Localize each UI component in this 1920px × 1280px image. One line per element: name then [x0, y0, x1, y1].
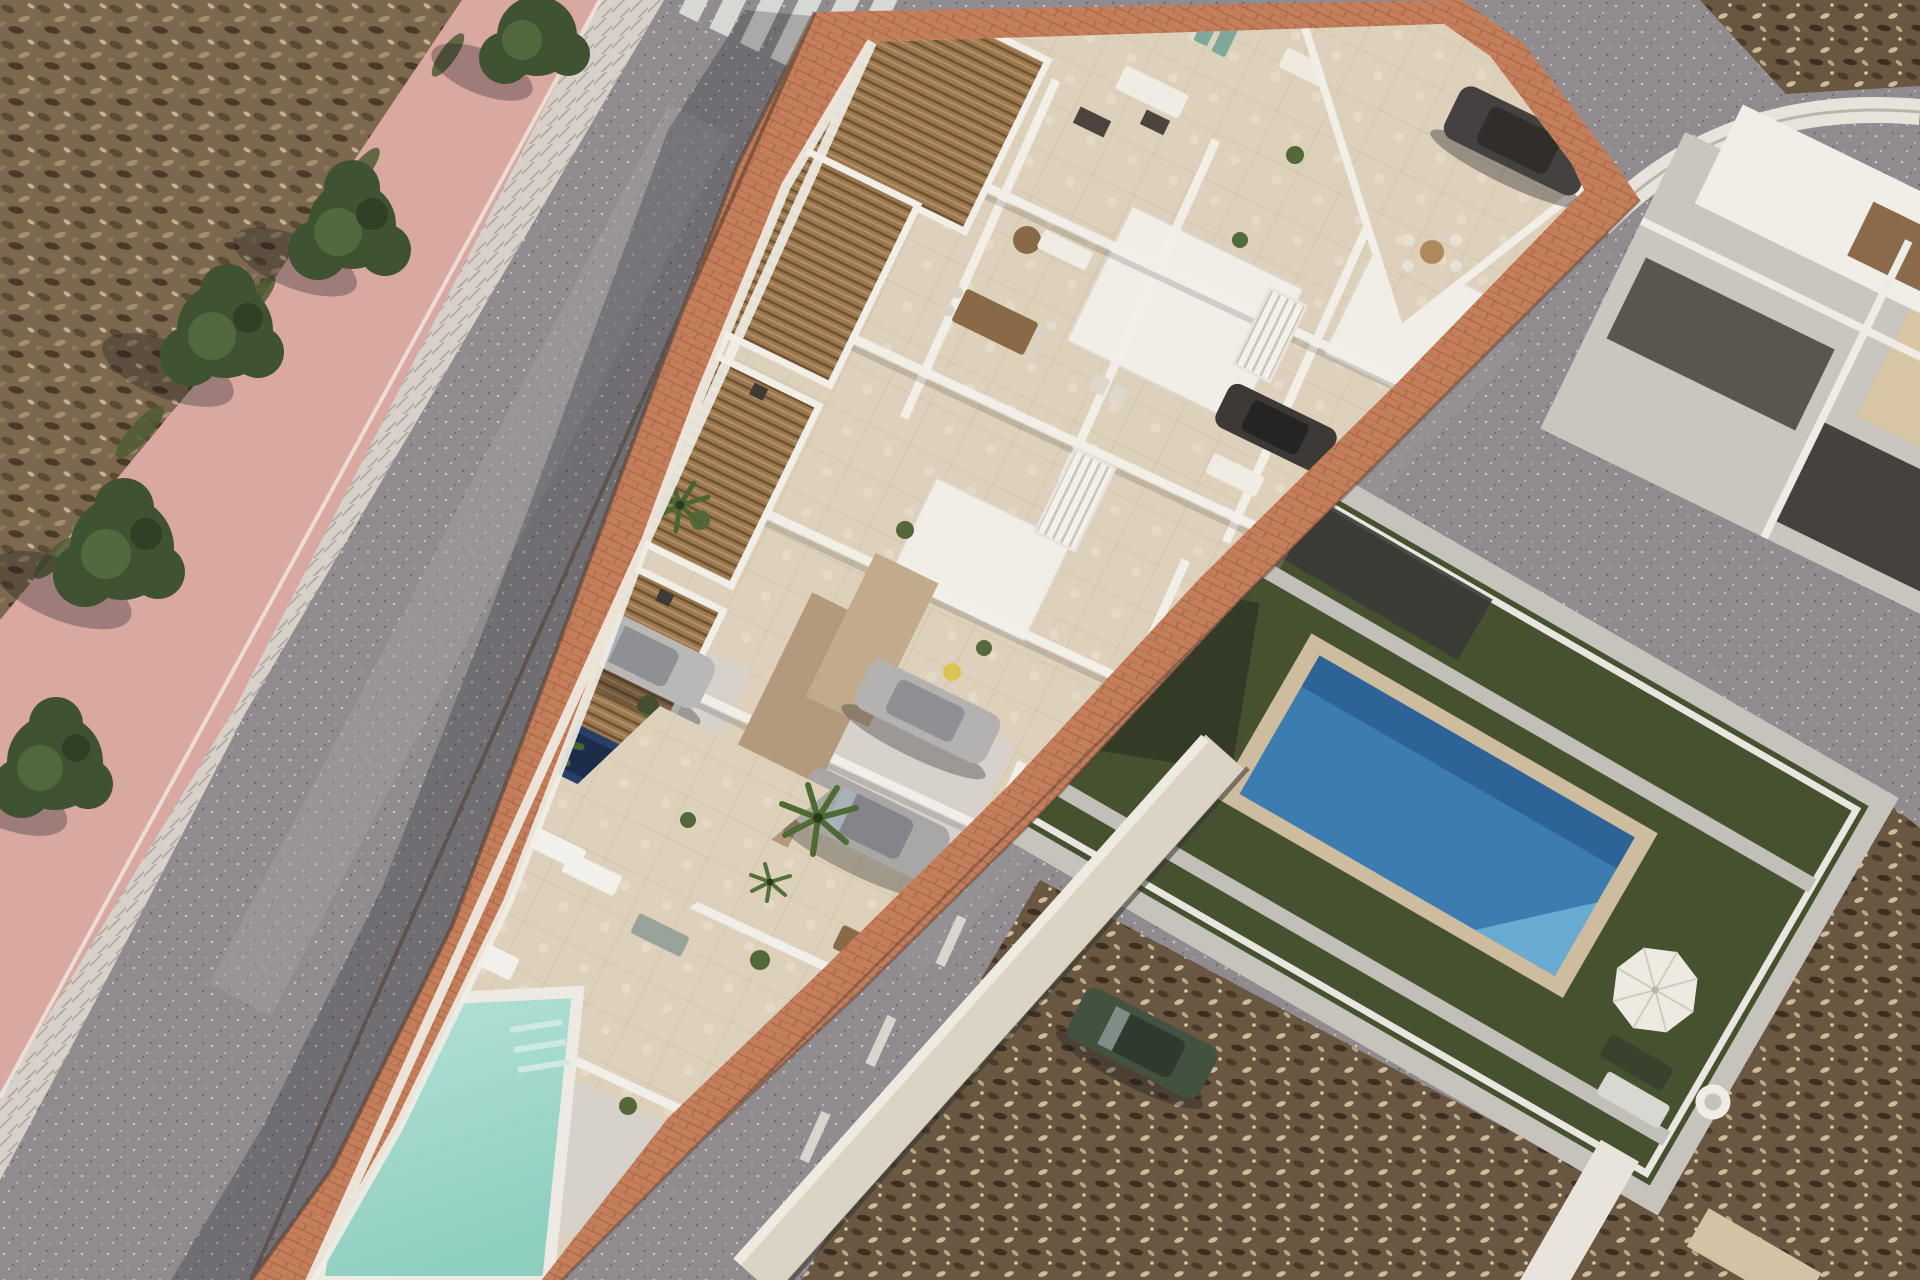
- patio-table: [1420, 240, 1444, 264]
- render-canvas: [0, 0, 1920, 1280]
- yellow-beanbag: [943, 663, 961, 681]
- round-table: [1013, 226, 1041, 254]
- aerial-render-image: [0, 0, 1920, 1280]
